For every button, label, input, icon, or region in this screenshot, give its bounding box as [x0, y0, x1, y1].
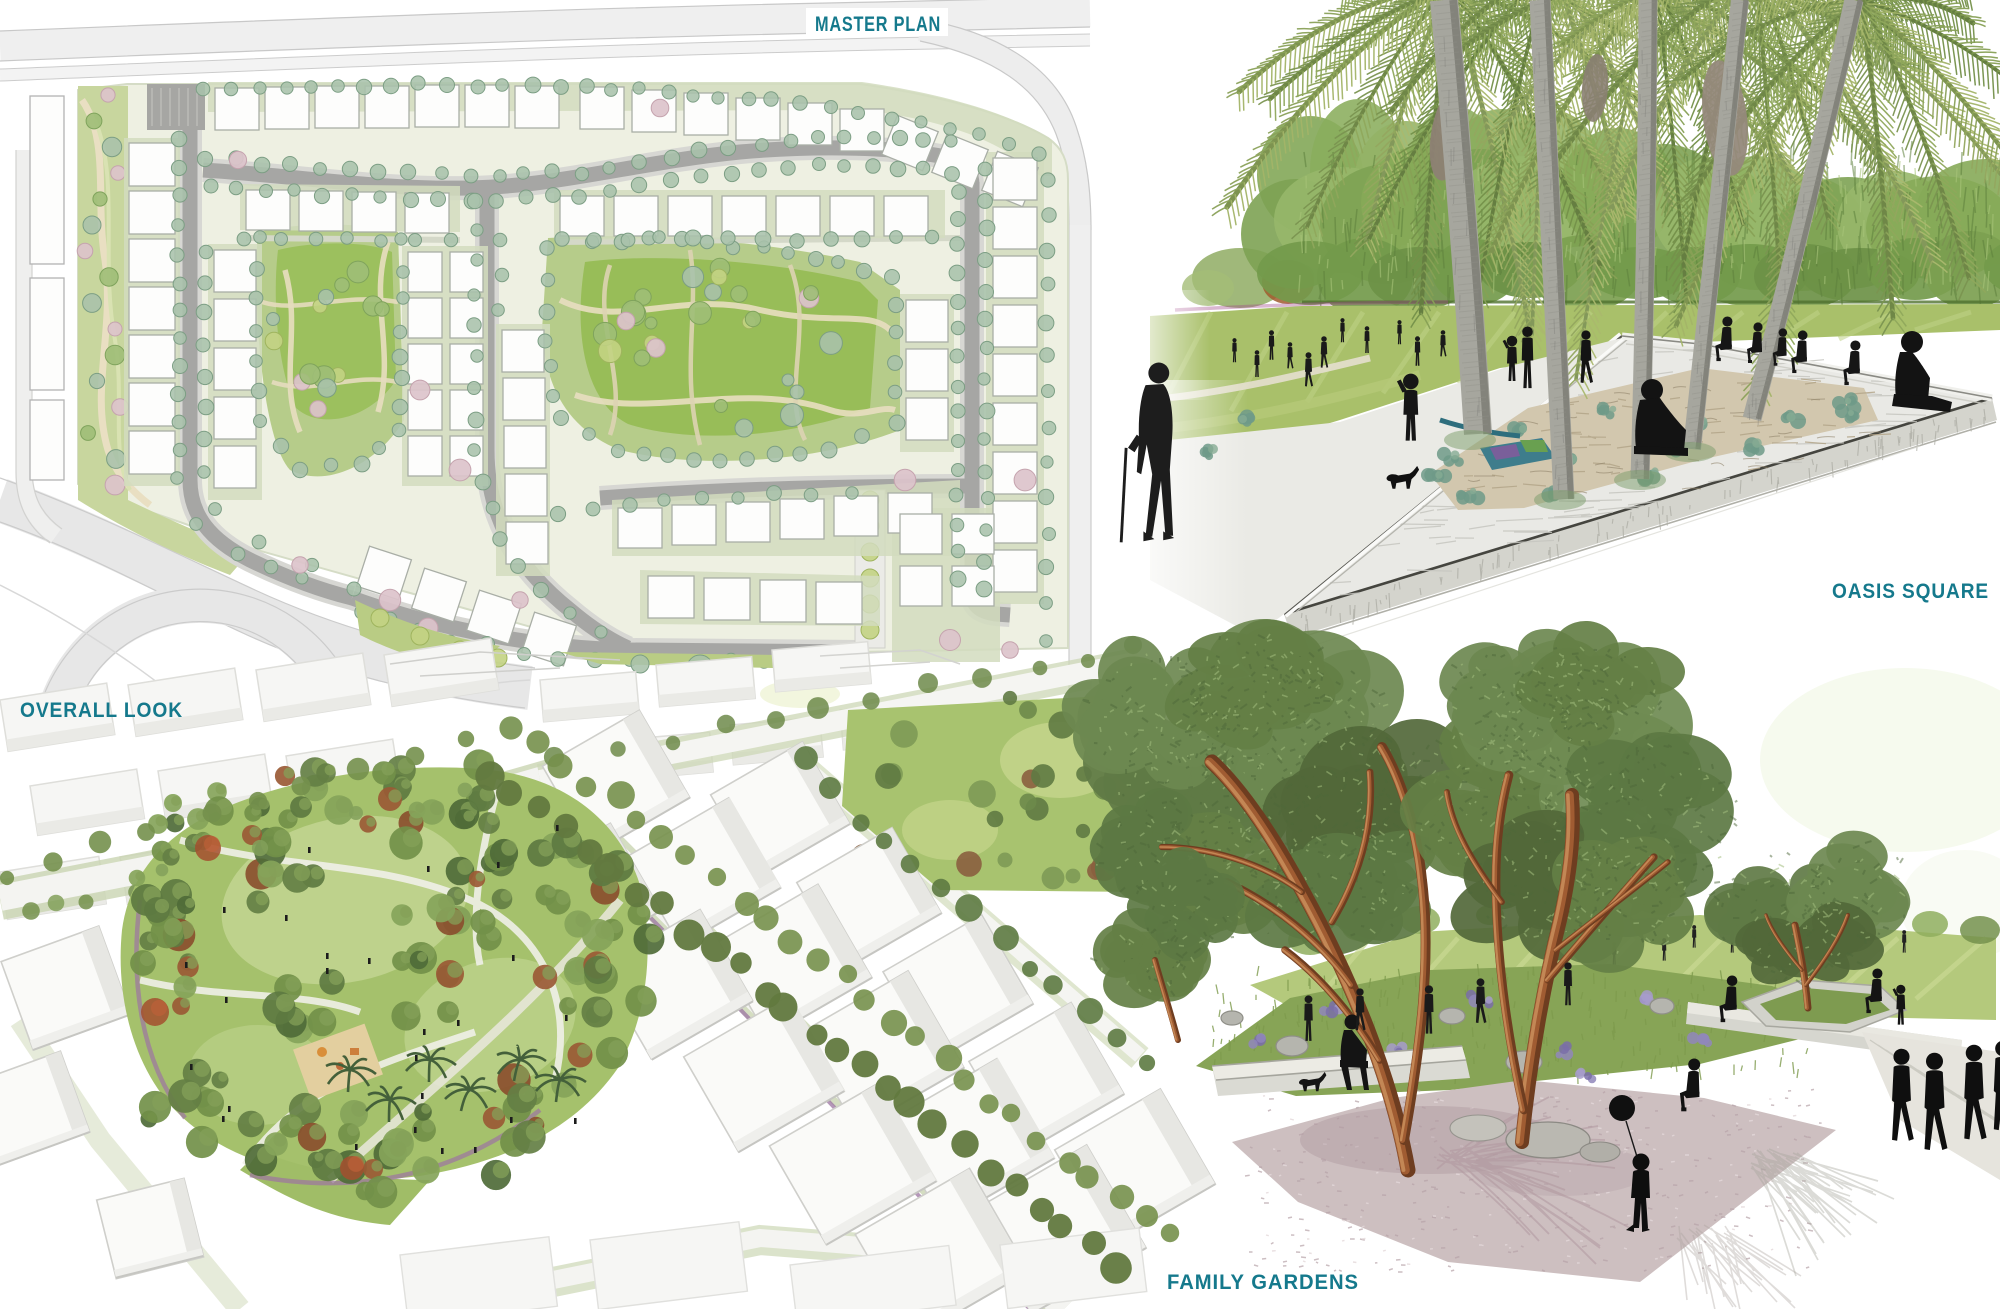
svg-text:OVERALL LOOK: OVERALL LOOK: [20, 698, 183, 722]
svg-text:MASTER PLAN: MASTER PLAN: [815, 12, 941, 36]
svg-text:FAMILY GARDENS: FAMILY GARDENS: [1167, 1270, 1359, 1294]
svg-text:OASIS SQUARE: OASIS SQUARE: [1832, 579, 1989, 603]
